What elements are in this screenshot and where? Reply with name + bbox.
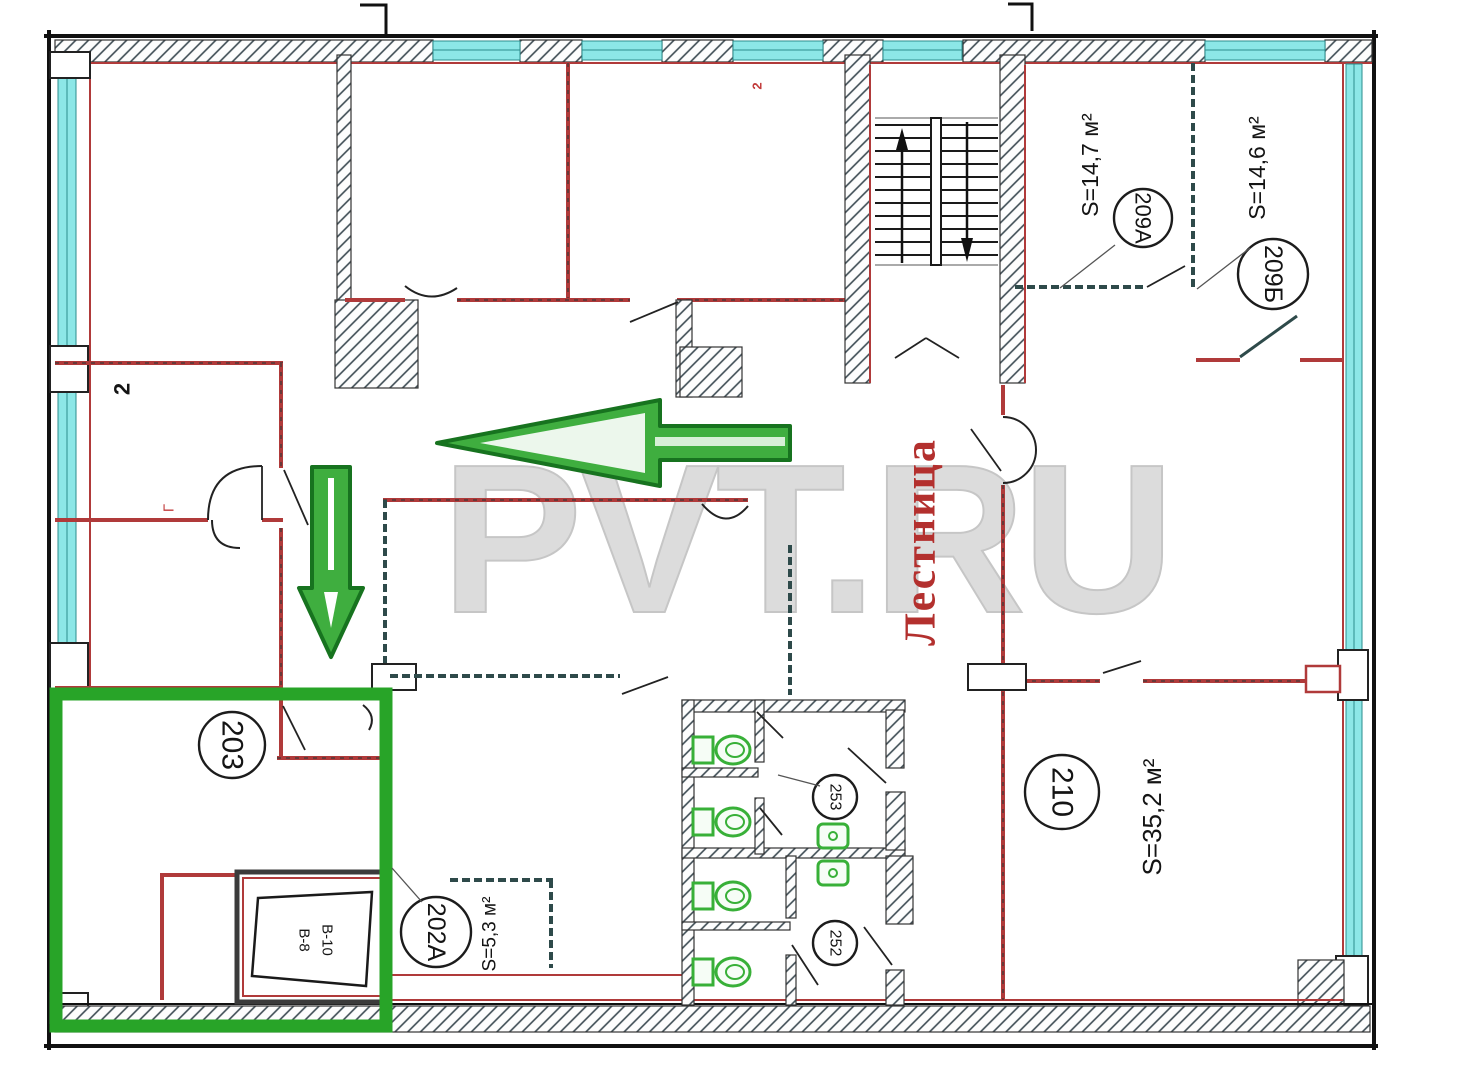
exit-arrow-down-icon — [299, 467, 363, 657]
area-209a: S=14,7 м² — [1077, 113, 1103, 217]
area-202a: S=5,3 м² — [480, 897, 501, 972]
room-209b-number: 209Б — [1259, 245, 1287, 303]
axis-stub-icon — [360, 5, 386, 36]
window-strip-right — [1346, 64, 1362, 956]
staircase-label: Лестница — [896, 438, 945, 646]
top-room-mark: 2 — [750, 82, 765, 89]
room-253-number: 253 — [827, 784, 844, 811]
room-252-number: 252 — [827, 930, 844, 957]
room-209a-number: 209A — [1131, 192, 1156, 244]
room-202a-number: 202A — [422, 903, 450, 962]
floor-plan-page: PVT.RU — [0, 0, 1459, 1080]
room-210-number: 210 — [1046, 767, 1079, 817]
washbasin-icon — [818, 861, 848, 885]
stairs-icon — [875, 118, 998, 265]
vent-label-1: В-8 — [296, 928, 313, 951]
left-room-mark: 2 — [110, 383, 135, 395]
floor-plan-drawing: PVT.RU — [0, 0, 1459, 1080]
area-210: S=35,2 м² — [1137, 758, 1167, 875]
window-strip-left — [58, 75, 90, 1022]
vent-label-2: В-10 — [319, 924, 336, 956]
axis-stub-icon — [1008, 4, 1032, 31]
washbasin-icon — [818, 824, 848, 848]
toilet-icon — [693, 736, 750, 764]
toilet-icon — [693, 958, 750, 986]
room-203-number: 203 — [216, 720, 249, 770]
left-door-mark: Г — [161, 504, 178, 512]
toilet-icon — [693, 882, 750, 910]
area-209b: S=14,6 м² — [1244, 116, 1270, 220]
toilet-icon — [693, 808, 750, 836]
stairs-down-arrow-icon — [961, 122, 973, 262]
